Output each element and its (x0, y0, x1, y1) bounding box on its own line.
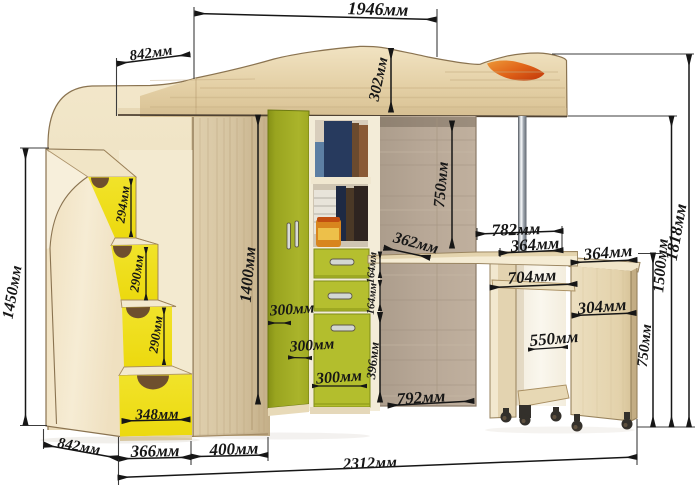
svg-text:792мм: 792мм (396, 386, 446, 408)
svg-text:366мм: 366мм (129, 441, 179, 461)
svg-text:2312мм: 2312мм (342, 454, 398, 473)
svg-text:300мм: 300мм (268, 299, 315, 319)
svg-text:300мм: 300мм (288, 335, 335, 355)
svg-text:348мм: 348мм (134, 407, 178, 424)
svg-text:400мм: 400мм (208, 439, 259, 460)
svg-text:1946мм: 1946мм (347, 0, 408, 20)
svg-text:704мм: 704мм (507, 265, 557, 287)
svg-text:300мм: 300мм (315, 367, 363, 387)
svg-text:364мм: 364мм (509, 233, 560, 255)
